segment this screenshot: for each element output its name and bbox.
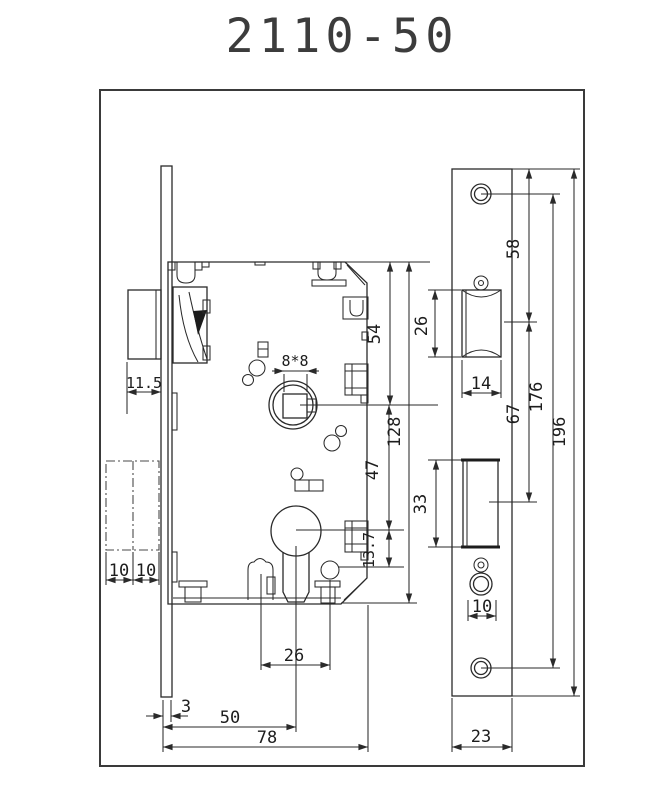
dim-case-height-label: 128 xyxy=(385,417,405,448)
dim-faceplate-thickness-label: 3 xyxy=(181,697,191,717)
dim-latch-cutout-height-label: 26 xyxy=(412,316,432,336)
faceplate-tab-upper xyxy=(172,393,177,430)
latch-bevel-mark xyxy=(193,310,207,335)
dim-bolt-hole-width-label: 10 xyxy=(472,597,492,617)
post2-body xyxy=(318,262,336,280)
post2-tab-left xyxy=(313,262,320,269)
latch-cutout xyxy=(462,290,501,357)
technical-drawing: 2110-50 xyxy=(0,0,671,801)
top-edge-step xyxy=(255,262,265,265)
post2-base-plate xyxy=(312,280,346,286)
strike-pin-hole-upper-center xyxy=(479,281,484,286)
spring-pin-small-left xyxy=(243,375,254,386)
faceplate xyxy=(161,166,172,697)
fixing-post-plate xyxy=(315,581,340,587)
dim-latch-protrusion-label: 11.5 xyxy=(126,374,162,392)
fixing-post-circle xyxy=(321,561,339,579)
strike-pin-hole-upper xyxy=(474,276,488,290)
strike-pin-hole-lower-center xyxy=(478,562,484,568)
latch-cutout-arc-bottom xyxy=(462,350,501,357)
deadbolt-cutout xyxy=(463,460,498,547)
top-chamfer-inner-line xyxy=(347,265,365,285)
post2-tab-right xyxy=(334,262,341,269)
dim-cylinder-to-pin-label: 13.7 xyxy=(360,532,378,568)
dim-screw-centers-label: 176 xyxy=(527,382,547,413)
left-post-plate xyxy=(179,581,207,587)
bottom-spring-clip-tab xyxy=(267,577,275,594)
faceplate-tab-lower xyxy=(172,552,177,582)
dim-top-to-latch-label: 58 xyxy=(504,239,524,259)
dim-plate-height-label: 196 xyxy=(550,417,570,448)
strike-bolt-hole-inner xyxy=(474,577,489,592)
hub-bracket xyxy=(345,364,368,395)
post1-tab-right xyxy=(195,262,202,270)
latch-spring-curve-1 xyxy=(179,295,198,362)
dim-bolt-cutout-height-label: 33 xyxy=(411,494,431,514)
stop-pin xyxy=(291,468,303,480)
bottom-chamfer-inner-line xyxy=(344,581,364,600)
dim-backset-label: 50 xyxy=(220,708,240,728)
top-edge-notch xyxy=(202,262,209,267)
fixing-post-stem xyxy=(321,587,335,603)
spring-pin-small-right xyxy=(336,426,347,437)
dim-spindle-square-label: 8*8 xyxy=(281,352,308,370)
spindle-square-hole xyxy=(283,394,307,418)
lock-body-view xyxy=(106,166,368,697)
dim-post-spacing-label: 26 xyxy=(284,646,304,666)
latch-cutout-arc-top xyxy=(462,290,501,297)
right-bracket-upper-clip xyxy=(350,300,363,316)
post1-body xyxy=(177,262,195,283)
dim-spindle-to-cylinder-label: 47 xyxy=(363,460,383,480)
dim-case-depth-label: 78 xyxy=(257,728,277,748)
drawing-sheet: 2110-50 xyxy=(0,0,671,801)
spring-pin-large-right xyxy=(324,435,340,451)
spring-pin-large-left xyxy=(249,360,265,376)
dim-top-to-spindle-label: 54 xyxy=(365,324,385,344)
dim-latch-to-bolt-label: 67 xyxy=(504,404,524,424)
dim-door-right-label: 10 xyxy=(136,561,156,581)
dim-door-left-label: 10 xyxy=(109,561,129,581)
drawing-title: 2110-50 xyxy=(225,9,458,64)
left-post-stem xyxy=(185,587,201,602)
dim-plate-width-label: 23 xyxy=(471,727,491,747)
dim-latch-cutout-width-label: 14 xyxy=(471,374,491,394)
strike-pin-hole-lower xyxy=(474,558,488,572)
